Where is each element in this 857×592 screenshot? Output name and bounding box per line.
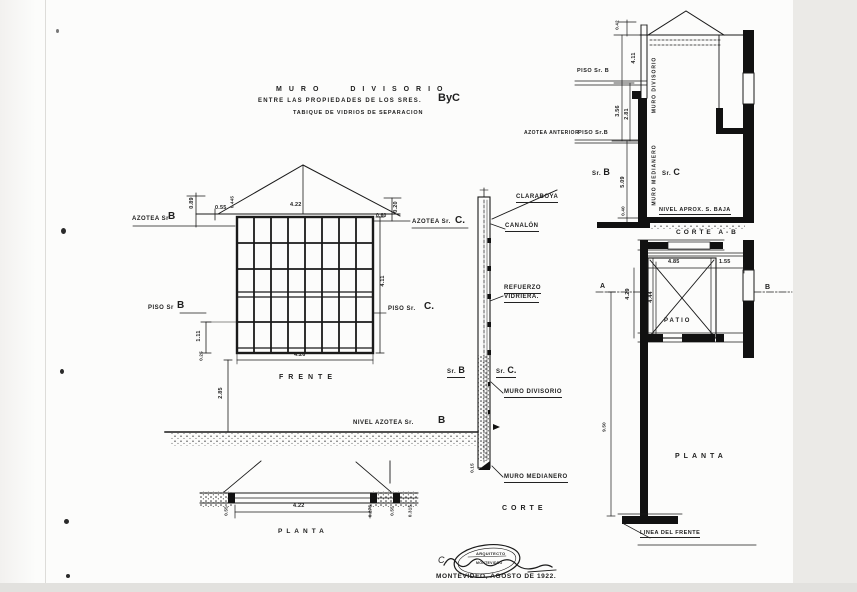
seal-text-arquitecto: ARQUITECTO <box>476 552 505 556</box>
planta-left-title: PLANTA <box>278 528 328 535</box>
label-ab-piso-b: PISO Sr. B <box>577 68 609 74</box>
label-piso-sr-b: PISO Sr <box>148 305 174 312</box>
label-azotea-sr-c: AZOTEA Sr. <box>412 219 451 226</box>
drawing-title-line2: ENTRE LAS PROPIEDADES DE LOS SRES. <box>258 98 422 105</box>
frente-title: FRENTE <box>279 374 337 382</box>
dim-pl-0275: 0.275 <box>369 505 374 517</box>
dim-ab-356: 3.56 <box>615 105 621 117</box>
letter-c: C. <box>507 365 516 375</box>
label-ab-azotea-anterior: AZOTEA ANTERIOR <box>524 131 579 137</box>
dim-pr-429: 4.29 <box>625 288 631 300</box>
corte-ab-drawing <box>575 11 754 230</box>
dim-ab-509: 5.09 <box>620 176 626 188</box>
letter-b: B <box>603 167 610 177</box>
label-refuerzo-2: VIDRIERA. <box>504 294 539 303</box>
label-ab-nivel: NIVEL APROX. S. BAJA <box>659 207 731 215</box>
dim-frente-111: 1.11 <box>196 330 202 341</box>
label-ab-muro-medianero: MURO MEDIANERO <box>652 144 658 205</box>
dim-corte-015: 0.15 <box>471 463 476 473</box>
label-azotea-sr-b: AZOTEA Sr <box>132 216 169 223</box>
corte-ab-title: CORTE A-B <box>676 229 739 236</box>
label-nivel-azotea: NIVEL AZOTEA Sr. <box>353 420 414 427</box>
dim-frente-025: 0.25 <box>200 351 205 361</box>
drawing-title-line1: MURO DIVISORIO <box>276 86 450 94</box>
owners-initials: ByC <box>438 92 460 104</box>
letter-b-azotea-left: B <box>168 211 175 222</box>
label-piso-sr-c: PISO Sr. <box>388 306 416 313</box>
label-patio: PATIO <box>664 318 691 325</box>
dim-ab-411: 4.11 <box>631 52 637 63</box>
letter-c-piso-right: C. <box>424 301 434 312</box>
stamp-date: MONTEVIDEO, AGOSTO DE 1922. <box>436 573 556 580</box>
signature-initial: C. <box>438 556 448 566</box>
planta-right-title: PLANTA <box>675 453 727 461</box>
dim-pr-950: 9.50 <box>603 422 608 432</box>
label-ab-piso-b2: PISO Sr.B <box>578 130 608 136</box>
label-ab-sr-c: Sr. C <box>662 168 680 178</box>
label-text: AZOTEA Sr <box>132 216 169 222</box>
label-corte-sr-b: Sr. B <box>447 366 465 378</box>
label-muro-medianero: MURO MEDIANERO <box>504 474 568 483</box>
section-marker-a: A <box>600 283 606 291</box>
label-refuerzo-1: REFUERZO <box>504 285 541 294</box>
planta-right-drawing <box>596 240 792 545</box>
drawing-title-line3: TABIQUE DE VIDRIOS DE SEPARACION <box>293 110 423 116</box>
label-text: Sr. <box>447 369 456 375</box>
dim-frente-top: 4.22 <box>290 202 302 208</box>
dim-frente-right-411: 4.11 <box>380 275 386 286</box>
letter-b-piso-left: B <box>177 300 184 311</box>
drawing-sheet: MURO DIVISORIO ENTRE LAS PROPIEDADES DE … <box>0 0 857 592</box>
planta-left-drawing <box>200 461 418 518</box>
corte-title: CORTE <box>502 505 547 513</box>
letter-c: C <box>673 167 680 177</box>
label-text: Sr. <box>662 171 671 177</box>
dim-frente-089: 0.89 <box>189 197 195 209</box>
dim-ab-281: 2.81 <box>624 108 630 120</box>
label-claraboya: CLARABOYA <box>516 194 558 203</box>
dim-pl-055: 0.55 <box>391 506 396 516</box>
dim-frente-020: 0.20 <box>393 201 399 213</box>
label-ab-muro-divisorio: MURO DIVISORIO <box>652 57 658 114</box>
dim-pl-l055: 0.55 <box>225 506 230 516</box>
label-text: Sr. <box>592 171 601 177</box>
letter-b-nivel: B <box>438 415 445 426</box>
dim-frente-285: 2.85 <box>218 387 224 399</box>
dim-ab-040: 0.40 <box>622 206 627 216</box>
label-text: Sr. <box>496 369 505 375</box>
label-corte-sr-c: Sr. C. <box>496 366 516 378</box>
dim-pr-444: 4.44 <box>648 291 654 303</box>
label-canalon: CANALÓN <box>505 223 539 232</box>
section-marker-b: B <box>765 284 771 292</box>
letter-b: B <box>458 365 465 375</box>
label-linea-del-frente: LINEA DEL FRENTE <box>640 530 700 538</box>
label-ab-sr-b: Sr. B <box>592 168 610 178</box>
dim-frente-055: 0.55 <box>215 205 227 211</box>
dim-pl-0315: 0.315 <box>409 505 414 517</box>
label-muro-divisorio: MURO DIVISORIO <box>504 389 562 398</box>
label-text: AZOTEA Sr. <box>412 219 451 225</box>
dim-ab-042: 0.42 <box>616 20 621 30</box>
dim-frente-bottom: 4.26 <box>294 352 306 358</box>
seal-text-montevideo: MONTEVIDEO <box>476 562 503 566</box>
dim-pr-485: 4.85 <box>668 259 680 265</box>
dim-pl-422: 4.22 <box>293 503 305 509</box>
letter-c-azotea-right: C. <box>455 215 465 226</box>
dim-frente-0445: 0.445 <box>231 196 236 208</box>
dim-pr-155: 1.55 <box>719 259 731 265</box>
dim-frente-060: 0.60 <box>376 214 387 220</box>
